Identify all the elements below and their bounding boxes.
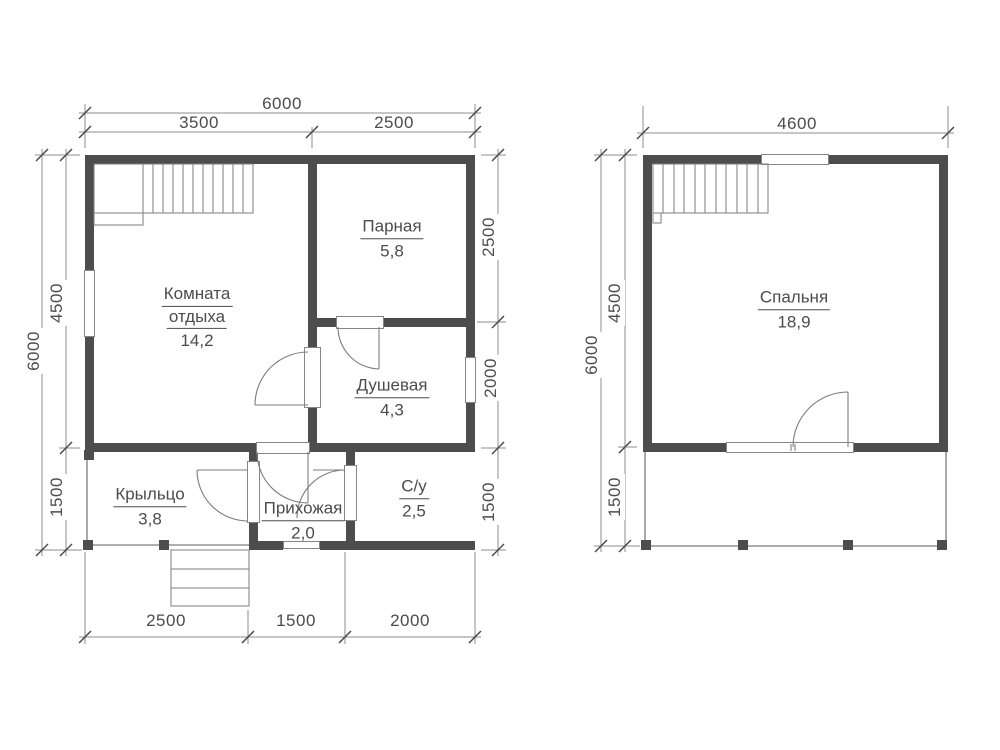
f2-dim-left-lower: 1500 bbox=[605, 474, 625, 520]
f1-dim-top-total: 6000 bbox=[262, 94, 302, 114]
room-area-lounge: 14,2 bbox=[162, 329, 233, 352]
room-name-lounge-line2: отдыха bbox=[167, 307, 227, 330]
f2-terrace-post-3 bbox=[843, 540, 853, 550]
f1-dim-bottom-right: 2000 bbox=[390, 611, 430, 631]
f2-dim-left-total: 6000 bbox=[582, 332, 602, 378]
f2-stairs-icon bbox=[653, 164, 768, 223]
room-name-shower: Душевая bbox=[355, 375, 430, 398]
f2-terrace-edge bbox=[645, 452, 946, 546]
room-label-steam: Парная 5,8 bbox=[360, 216, 423, 261]
floor-plan-canvas: 6000 3500 2500 6000 4500 1500 2500 2000 … bbox=[0, 0, 1000, 750]
f2-stairs-notch bbox=[653, 213, 661, 223]
f2-dim-top-total: 4600 bbox=[777, 114, 817, 134]
room-name-porch: Крыльцо bbox=[113, 484, 186, 507]
f1-dim-bottom-middle: 1500 bbox=[276, 611, 316, 631]
f1-dim-left-lower: 1500 bbox=[47, 474, 67, 520]
f1-dim-right-upper: 2500 bbox=[479, 214, 499, 260]
f1-porch-post-top bbox=[84, 450, 94, 460]
room-label-bedroom: Спальня 18,9 bbox=[758, 287, 830, 332]
f1-exterior-steps-icon bbox=[171, 550, 249, 606]
f1-door-swings bbox=[197, 327, 379, 521]
f1-dim-left-total: 6000 bbox=[24, 328, 44, 374]
f1-dim-top-left: 3500 bbox=[179, 113, 219, 133]
room-label-shower: Душевая 4,3 bbox=[355, 375, 430, 420]
f2-terrace-structure bbox=[641, 452, 947, 550]
room-area-porch: 3,8 bbox=[113, 507, 186, 530]
f2-door-bedroom-swing-icon bbox=[793, 392, 848, 447]
f2-terrace-post-2 bbox=[738, 540, 748, 550]
room-area-wc: 2,5 bbox=[399, 499, 429, 522]
room-label-porch: Крыльцо 3,8 bbox=[113, 484, 186, 529]
room-name-lounge-line1: Комната bbox=[162, 284, 233, 307]
f1-door-porch-swing-icon bbox=[197, 470, 248, 521]
f2-dim-left-upper: 4500 bbox=[605, 280, 625, 326]
f1-door-lounge-shower-swing-icon bbox=[255, 352, 308, 405]
f2-terrace-post-4 bbox=[937, 540, 947, 550]
room-label-wc: С/у 2,5 bbox=[399, 476, 429, 521]
f1-exterior-steps-treads bbox=[171, 569, 249, 588]
f1-exterior-steps-outline bbox=[171, 550, 249, 606]
room-name-hallway: Прихожая bbox=[262, 498, 345, 521]
room-area-steam: 5,8 bbox=[360, 239, 423, 262]
f1-porch-post-bottom-middle bbox=[159, 540, 169, 550]
f1-dim-bottom-left: 2500 bbox=[146, 611, 186, 631]
room-name-bedroom: Спальня bbox=[758, 287, 830, 310]
room-area-bedroom: 18,9 bbox=[758, 310, 830, 333]
f1-stairs-landing-step bbox=[94, 213, 143, 225]
f1-dim-right-middle: 2000 bbox=[481, 355, 501, 401]
f2-balcony-door bbox=[791, 392, 848, 451]
f1-porch-post-bottom-left bbox=[83, 540, 93, 550]
f1-stairs-treads bbox=[143, 164, 243, 213]
f1-stairs-icon bbox=[94, 164, 253, 225]
f2-stairs-outline bbox=[653, 164, 768, 213]
room-area-hallway: 2,0 bbox=[262, 521, 345, 544]
f2-stairs-treads bbox=[663, 164, 758, 213]
f1-dim-left-upper: 4500 bbox=[47, 280, 67, 326]
room-name-wc: С/у bbox=[399, 476, 429, 499]
room-label-lounge: Комната отдыха 14,2 bbox=[162, 284, 233, 352]
f1-door-lounge-hall-swing-icon bbox=[257, 452, 308, 503]
room-label-hallway: Прихожая 2,0 bbox=[262, 498, 345, 543]
f1-dim-top-right: 2500 bbox=[374, 113, 414, 133]
f1-door-steam-swing-icon bbox=[338, 327, 379, 369]
room-area-shower: 4,3 bbox=[355, 398, 430, 421]
f2-terrace-post-1 bbox=[641, 540, 651, 550]
f1-dim-right-lower: 1500 bbox=[479, 479, 499, 525]
room-name-steam: Парная bbox=[360, 216, 423, 239]
